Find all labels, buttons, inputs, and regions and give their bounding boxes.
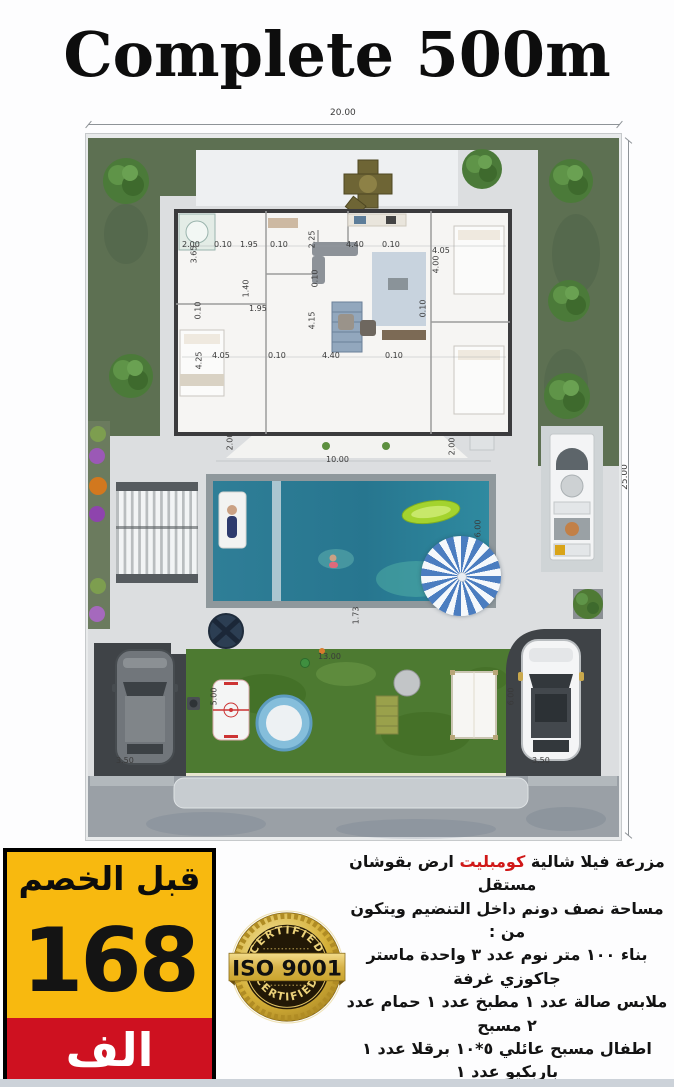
dim-label: 0.10 <box>310 270 319 288</box>
dim-label: 1.40 <box>241 280 250 298</box>
armchair <box>360 320 376 336</box>
dim-label: 4.05 <box>432 246 450 255</box>
bed <box>454 226 504 294</box>
dim-label: 10.00 <box>326 455 349 464</box>
kitchen-counter <box>348 214 406 226</box>
topiary <box>573 589 603 619</box>
dim-label: 3.50 <box>116 756 134 765</box>
dim-label: 0.10 <box>214 240 232 249</box>
pool-umbrella-icon <box>421 536 501 616</box>
lot-width-dimension: 20.00 <box>330 108 356 118</box>
bottom-strip <box>0 1079 674 1087</box>
dim-label: 4.05 <box>212 351 230 360</box>
dim-label: 5.00 <box>209 688 218 706</box>
bbq-station <box>541 426 603 572</box>
price-heading: قبل الخصم <box>7 852 212 904</box>
description-line: مزرعة فيلا شالية كومبليت ارض بقوشان مستق… <box>346 850 668 897</box>
price-amount: 168 <box>7 904 212 1018</box>
dim-label: 6.00 <box>506 688 515 706</box>
trampoline <box>257 696 311 750</box>
highlight-word: كومبليت <box>459 852 525 871</box>
car-right <box>518 640 584 760</box>
top-dimension-line <box>88 124 620 125</box>
pool-lounger-float <box>219 492 246 548</box>
picnic-table <box>376 696 398 734</box>
description-line: مساحة نصف دونم داخل التنضيم ويتكون من : <box>346 897 668 944</box>
dim-label: 1.73 <box>351 607 360 625</box>
dim-label: 4.00 <box>431 256 440 274</box>
dim-label: 1.95 <box>249 304 267 313</box>
badge-label: ISO 9001 <box>232 956 342 981</box>
site-plan: 2.00 0.10 1.95 0.10 2.25 4.40 0.10 4.05 … <box>85 133 622 841</box>
description-text: مزرعة فيلا شالية <box>525 852 665 871</box>
tent <box>450 670 498 740</box>
dim-label: 3.65 <box>189 246 198 264</box>
bed <box>454 346 504 414</box>
tree <box>103 158 149 204</box>
pergola <box>116 482 198 583</box>
car-left <box>112 650 178 764</box>
dim-label: 4.15 <box>307 312 316 330</box>
dim-label: 0.10 <box>193 302 202 320</box>
description-line: ملابس صالة عدد ١ مطبخ عدد ١ حمام عدد ٢ م… <box>346 990 668 1037</box>
tv-console <box>382 330 426 340</box>
dim-label: 6.00 <box>473 520 482 538</box>
lane-divider <box>272 481 281 601</box>
dim-label: 4.40 <box>346 240 364 249</box>
armchair <box>338 314 354 330</box>
tree <box>109 354 153 398</box>
price-unit: الف <box>66 1027 154 1073</box>
steps <box>470 434 494 450</box>
dim-label: 13.00 <box>318 652 341 661</box>
tree <box>462 149 502 189</box>
top-patio <box>196 150 458 206</box>
round-table <box>394 670 420 696</box>
ball <box>301 659 310 668</box>
description: مزرعة فيلا شالية كومبليت ارض بقوشان مستق… <box>346 850 668 1087</box>
poster-title: Complete 500m <box>0 18 674 91</box>
dim-label: 0.10 <box>268 351 286 360</box>
description-line: اطفال مسبح عائلي ٥*١٠ برقلا عدد ١ باربكي… <box>346 1037 668 1084</box>
tree <box>544 373 590 419</box>
price-box: قبل الخصم 168 الف <box>3 848 216 1086</box>
dim-label: 4.25 <box>194 352 203 370</box>
dim-label: 4.40 <box>322 351 340 360</box>
dim-label: 0.10 <box>418 300 427 318</box>
description-line: بناء ١٠٠ متر نوم عدد ٣ واحدة ماستر جاكوز… <box>346 943 668 990</box>
dim-label: 2.00 <box>447 438 456 456</box>
fire-pit <box>187 697 200 710</box>
poster: Complete 500m 20.00 25.00 <box>0 0 674 1087</box>
iso-9001-badge-icon: CERTIFIED CERTIFIED ISO 9001 <box>228 908 346 1026</box>
dim-label: 0.10 <box>382 240 400 249</box>
dim-label: 1.95 <box>240 240 258 249</box>
pouf <box>209 614 243 648</box>
tree <box>549 159 593 203</box>
wardrobe <box>268 218 298 228</box>
flower-bed <box>88 421 110 629</box>
dim-label: 0.10 <box>270 240 288 249</box>
dim-label: 3.50 <box>532 756 550 765</box>
dim-label: 0.10 <box>385 351 403 360</box>
street <box>88 776 619 839</box>
dim-label: 2.25 <box>307 231 316 249</box>
coffee-table <box>388 278 408 290</box>
tree <box>548 280 590 322</box>
shrub <box>382 442 390 450</box>
sidewalk <box>174 778 528 808</box>
shrub <box>322 442 330 450</box>
price-unit-band: الف <box>7 1018 212 1082</box>
dim-label: 2.00 <box>225 433 234 451</box>
